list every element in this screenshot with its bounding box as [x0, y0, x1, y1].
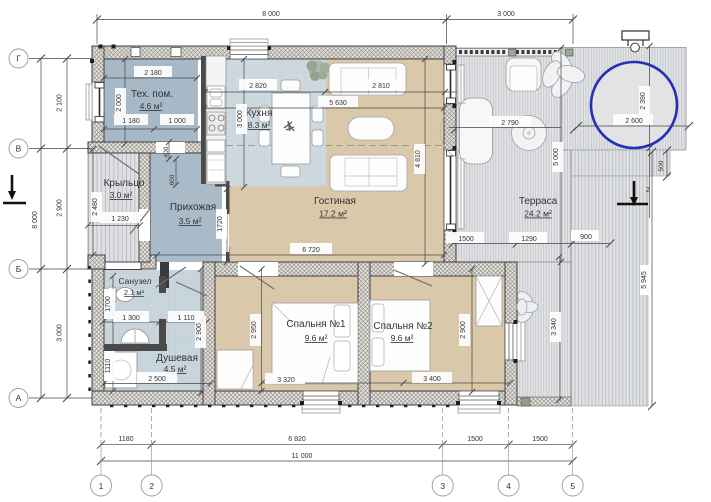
- svg-text:1110: 1110: [105, 359, 112, 374]
- svg-text:3: 3: [440, 481, 445, 491]
- svg-text:1 230: 1 230: [111, 216, 129, 223]
- svg-text:4: 4: [506, 481, 511, 491]
- svg-text:2.1 м²: 2.1 м²: [124, 288, 145, 297]
- svg-text:3.0 м²: 3.0 м²: [110, 190, 133, 200]
- svg-text:1: 1: [99, 481, 104, 491]
- svg-text:Тех. пом.: Тех. пом.: [131, 89, 173, 100]
- svg-text:8 000: 8 000: [262, 11, 280, 18]
- svg-text:2 500: 2 500: [148, 376, 166, 383]
- svg-text:500: 500: [658, 160, 665, 171]
- svg-text:600: 600: [169, 174, 176, 185]
- svg-text:1500: 1500: [458, 236, 474, 243]
- svg-text:5: 5: [570, 481, 575, 491]
- svg-text:2 790: 2 790: [501, 120, 519, 127]
- svg-text:1 110: 1 110: [178, 315, 195, 322]
- svg-text:17.2 м²: 17.2 м²: [319, 209, 347, 219]
- svg-text:11 000: 11 000: [292, 453, 313, 460]
- svg-text:2 900: 2 900: [57, 199, 64, 217]
- svg-text:Гостиная: Гостиная: [314, 196, 356, 207]
- svg-text:Крыльцо: Крыльцо: [104, 178, 145, 189]
- svg-text:400: 400: [163, 146, 170, 157]
- svg-text:4.6 м²: 4.6 м²: [140, 101, 163, 111]
- svg-text:3 000: 3 000: [237, 110, 244, 128]
- svg-text:Г: Г: [16, 54, 21, 64]
- svg-text:1 180: 1 180: [122, 118, 140, 125]
- svg-text:1180: 1180: [118, 436, 133, 443]
- svg-text:5 630: 5 630: [329, 100, 347, 107]
- svg-text:5 945: 5 945: [641, 271, 648, 289]
- svg-text:4 810: 4 810: [415, 150, 422, 168]
- svg-text:2 100: 2 100: [57, 94, 64, 112]
- svg-text:2 900: 2 900: [460, 321, 467, 339]
- svg-text:1290: 1290: [521, 236, 537, 243]
- svg-text:1700: 1700: [105, 296, 112, 312]
- svg-text:1 000: 1 000: [168, 118, 186, 125]
- svg-text:1500: 1500: [467, 436, 483, 443]
- svg-text:5 000: 5 000: [553, 148, 560, 166]
- svg-text:2 950: 2 950: [251, 321, 258, 339]
- svg-text:Прихожая: Прихожая: [170, 202, 216, 213]
- svg-text:3 000: 3 000: [57, 324, 64, 342]
- svg-text:1500: 1500: [532, 436, 548, 443]
- svg-text:2: 2: [149, 481, 154, 491]
- svg-text:2 600: 2 600: [625, 118, 643, 125]
- svg-text:3 320: 3 320: [277, 377, 295, 384]
- svg-text:2 900: 2 900: [196, 323, 203, 341]
- svg-text:24.2 м²: 24.2 м²: [524, 209, 552, 219]
- svg-text:Спальня №1: Спальня №1: [286, 319, 346, 330]
- svg-text:В: В: [16, 144, 22, 154]
- svg-text:8 000: 8 000: [32, 211, 39, 229]
- svg-text:9.6 м²: 9.6 м²: [305, 333, 328, 343]
- svg-text:2 390: 2 390: [640, 92, 647, 110]
- svg-text:Кухня: Кухня: [246, 108, 273, 119]
- svg-text:900: 900: [580, 234, 592, 241]
- svg-text:1720: 1720: [217, 216, 224, 232]
- svg-text:2 480: 2 480: [92, 198, 99, 216]
- svg-text:Б: Б: [16, 264, 22, 274]
- svg-text:2 810: 2 810: [372, 83, 390, 90]
- svg-text:2 000: 2 000: [116, 94, 123, 112]
- svg-text:А: А: [16, 393, 22, 403]
- svg-text:Терраса: Терраса: [519, 196, 558, 207]
- svg-text:3.5 м²: 3.5 м²: [179, 216, 202, 226]
- svg-text:Спальня №2: Спальня №2: [373, 321, 433, 332]
- svg-text:2 180: 2 180: [144, 70, 162, 77]
- svg-text:9.6 м²: 9.6 м²: [391, 333, 414, 343]
- svg-text:3 400: 3 400: [423, 376, 441, 383]
- svg-text:8.3 м²: 8.3 м²: [248, 120, 271, 130]
- svg-text:1 300: 1 300: [122, 315, 140, 322]
- svg-text:6 820: 6 820: [288, 436, 306, 443]
- svg-text:Санузел: Санузел: [118, 276, 151, 286]
- svg-text:3 000: 3 000: [497, 11, 515, 18]
- svg-text:3 340: 3 340: [551, 318, 558, 336]
- svg-text:2 820: 2 820: [249, 83, 267, 90]
- svg-text:6 720: 6 720: [302, 247, 320, 254]
- svg-text:Душевая: Душевая: [156, 353, 198, 364]
